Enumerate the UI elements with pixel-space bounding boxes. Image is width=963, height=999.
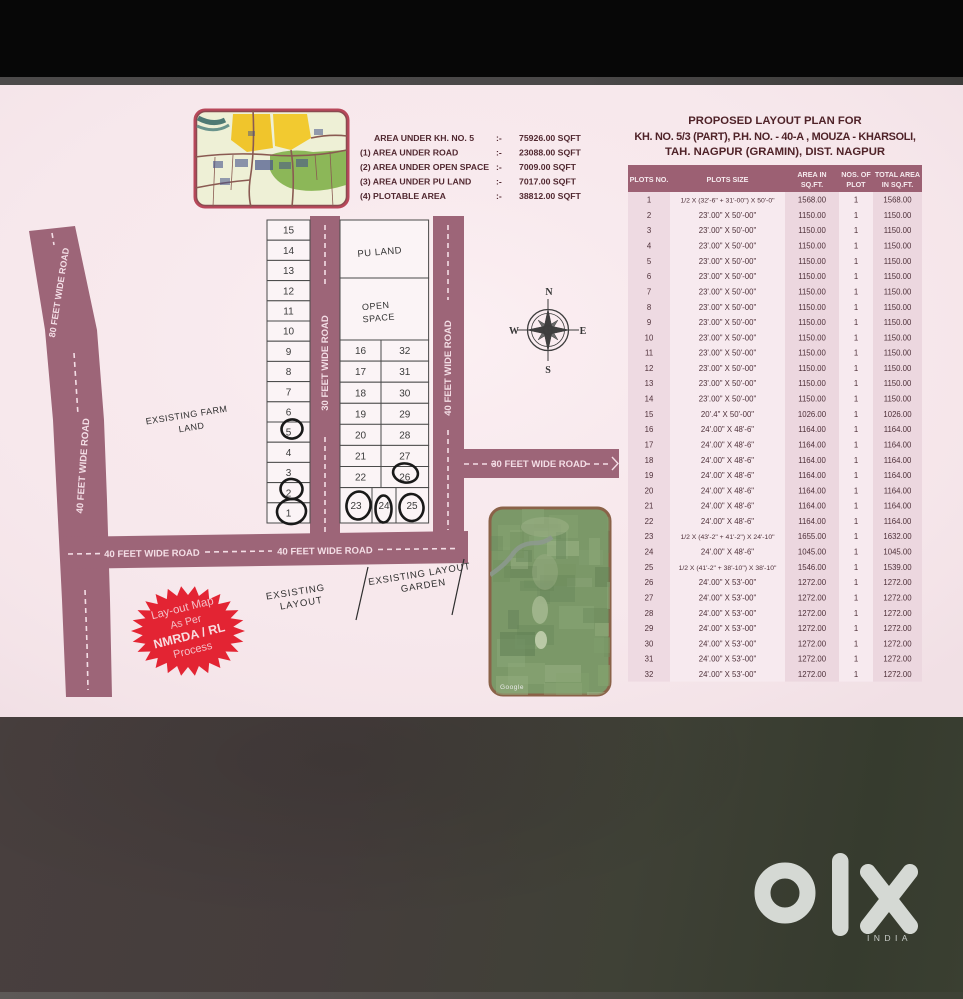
svg-text:1: 1 — [854, 257, 858, 266]
svg-text:29: 29 — [645, 624, 654, 633]
svg-text:PLOTS SIZE: PLOTS SIZE — [707, 175, 749, 184]
svg-text:1150.00: 1150.00 — [798, 242, 826, 251]
svg-text:15: 15 — [283, 226, 295, 237]
svg-text:24'.00" X 53'-00": 24'.00" X 53'-00" — [699, 594, 757, 603]
svg-text:W: W — [509, 326, 519, 337]
svg-text:1: 1 — [854, 333, 858, 342]
svg-text:1: 1 — [854, 548, 858, 557]
svg-text:1/2 X (41'-2" + 38'-10") X 38': 1/2 X (41'-2" + 38'-10") X 38'-10" — [679, 565, 777, 572]
svg-text:1150.00: 1150.00 — [798, 364, 826, 373]
svg-text:PLOT: PLOT — [846, 180, 866, 189]
svg-text:24'.00" X 48'-6": 24'.00" X 48'-6" — [701, 425, 754, 434]
svg-text:1539.00: 1539.00 — [883, 563, 912, 572]
svg-text:12: 12 — [645, 364, 654, 373]
svg-text:1150.00: 1150.00 — [798, 333, 826, 342]
svg-text:24'.00" X 48'-6": 24'.00" X 48'-6" — [701, 456, 754, 465]
svg-text:18: 18 — [645, 456, 654, 465]
svg-text:1: 1 — [854, 456, 858, 465]
svg-text:1: 1 — [854, 532, 858, 541]
svg-text:1272.00: 1272.00 — [798, 578, 827, 587]
svg-text:1: 1 — [854, 655, 858, 664]
svg-text:1164.00: 1164.00 — [884, 425, 912, 434]
svg-text:23'.00" X 50'-00": 23'.00" X 50'-00" — [699, 364, 757, 373]
svg-text:1164.00: 1164.00 — [884, 471, 912, 480]
svg-text:1272.00: 1272.00 — [798, 609, 827, 618]
svg-text:23'.00" X 50'-00": 23'.00" X 50'-00" — [699, 287, 757, 296]
svg-text:1150.00: 1150.00 — [884, 211, 912, 220]
svg-text:1150.00: 1150.00 — [798, 272, 826, 281]
svg-text:26: 26 — [645, 578, 654, 587]
svg-text:1: 1 — [854, 395, 858, 404]
svg-text:1272.00: 1272.00 — [883, 624, 912, 633]
svg-text:6: 6 — [647, 272, 651, 281]
svg-text:17: 17 — [355, 367, 367, 378]
svg-text:NOS. OF: NOS. OF — [841, 170, 871, 179]
svg-text:Google: Google — [500, 684, 524, 691]
svg-text:1150.00: 1150.00 — [884, 287, 912, 296]
svg-text:1272.00: 1272.00 — [798, 594, 827, 603]
svg-text:24'.00" X 48'-6": 24'.00" X 48'-6" — [701, 517, 754, 526]
svg-text:1: 1 — [854, 441, 858, 450]
svg-text:9: 9 — [647, 318, 651, 327]
svg-text:20: 20 — [645, 486, 654, 495]
svg-text:1164.00: 1164.00 — [798, 517, 826, 526]
svg-text:24'.00" X 48'-6": 24'.00" X 48'-6" — [701, 441, 754, 450]
svg-text:1150.00: 1150.00 — [884, 379, 912, 388]
svg-text:1164.00: 1164.00 — [884, 517, 912, 526]
svg-text::-: :- — [496, 133, 502, 143]
svg-text:20'.4" X 50'-00": 20'.4" X 50'-00" — [701, 410, 754, 419]
svg-text:1150.00: 1150.00 — [884, 272, 912, 281]
svg-text:23'.00" X 50'-00": 23'.00" X 50'-00" — [699, 242, 757, 251]
svg-text:1: 1 — [854, 211, 858, 220]
svg-text:20: 20 — [355, 431, 367, 442]
svg-text:1045.00: 1045.00 — [883, 548, 912, 557]
svg-text:1164.00: 1164.00 — [798, 425, 826, 434]
svg-text:1: 1 — [854, 594, 858, 603]
svg-text:11: 11 — [645, 349, 653, 358]
svg-text:31: 31 — [645, 655, 654, 664]
svg-text:23'.00" X 50'-00": 23'.00" X 50'-00" — [699, 303, 757, 312]
svg-text:1150.00: 1150.00 — [884, 242, 912, 251]
svg-text::-: :- — [496, 148, 502, 158]
svg-text:1: 1 — [854, 364, 858, 373]
svg-text:23'.00" X 50'-00": 23'.00" X 50'-00" — [699, 318, 757, 327]
svg-text:23'.00" X 50'-00": 23'.00" X 50'-00" — [699, 379, 757, 388]
svg-text:3: 3 — [647, 226, 651, 235]
svg-text:12: 12 — [283, 286, 295, 297]
svg-text:24: 24 — [645, 548, 654, 557]
svg-text:23: 23 — [350, 501, 362, 512]
svg-text:AREA IN: AREA IN — [797, 170, 826, 179]
svg-text:8: 8 — [286, 367, 292, 378]
svg-text:1150.00: 1150.00 — [884, 318, 912, 327]
svg-text:1150.00: 1150.00 — [884, 303, 912, 312]
svg-text::-: :- — [496, 177, 502, 187]
svg-text:TOTAL AREA: TOTAL AREA — [875, 170, 920, 179]
svg-text:24'.00" X 53'-00": 24'.00" X 53'-00" — [699, 639, 757, 648]
svg-text:25: 25 — [645, 563, 654, 572]
svg-text:19: 19 — [645, 471, 654, 480]
svg-text:1150.00: 1150.00 — [884, 257, 912, 266]
svg-text:23'.00" X 50'-00": 23'.00" X 50'-00" — [699, 349, 757, 358]
svg-text:30 FEET WIDE ROAD: 30 FEET WIDE ROAD — [491, 459, 587, 470]
svg-text:1: 1 — [647, 196, 651, 205]
svg-text:1150.00: 1150.00 — [798, 303, 826, 312]
svg-text:19: 19 — [355, 409, 367, 420]
svg-text:1164.00: 1164.00 — [884, 456, 912, 465]
svg-text:23'.00" X 50'-00": 23'.00" X 50'-00" — [699, 395, 757, 404]
svg-text:1632.00: 1632.00 — [883, 532, 912, 541]
svg-text:1150.00: 1150.00 — [884, 364, 912, 373]
svg-text:23'.00" X 50'-00": 23'.00" X 50'-00" — [699, 211, 757, 220]
svg-text:1164.00: 1164.00 — [798, 502, 826, 511]
svg-text:(2) AREA UNDER OPEN SPACE: (2) AREA UNDER OPEN SPACE — [360, 162, 489, 172]
svg-text:14: 14 — [283, 246, 295, 257]
svg-text:1026.00: 1026.00 — [798, 410, 827, 419]
svg-text:23'.00" X 50'-00": 23'.00" X 50'-00" — [699, 333, 757, 342]
svg-text:1: 1 — [854, 624, 858, 633]
svg-text:E: E — [580, 326, 587, 337]
svg-text:28: 28 — [645, 609, 654, 618]
svg-text:1164.00: 1164.00 — [798, 441, 826, 450]
svg-text:S: S — [545, 365, 551, 376]
svg-text:21: 21 — [355, 452, 367, 463]
svg-text:1272.00: 1272.00 — [798, 624, 827, 633]
svg-text:1: 1 — [854, 287, 858, 296]
svg-text:1: 1 — [854, 502, 858, 511]
svg-text:1568.00: 1568.00 — [883, 196, 912, 205]
svg-text:18: 18 — [355, 388, 367, 399]
svg-text:16: 16 — [645, 425, 654, 434]
svg-text:9: 9 — [286, 347, 292, 358]
svg-text:3: 3 — [286, 468, 292, 479]
svg-text:24'.00" X 53'-00": 24'.00" X 53'-00" — [699, 578, 757, 587]
svg-text:24'.00" X 53'-00": 24'.00" X 53'-00" — [699, 670, 757, 679]
svg-text:1: 1 — [854, 639, 858, 648]
svg-text:24'.00" X 48'-6": 24'.00" X 48'-6" — [701, 486, 754, 495]
svg-text:1568.00: 1568.00 — [798, 196, 827, 205]
svg-text:1150.00: 1150.00 — [884, 226, 912, 235]
svg-text:1: 1 — [854, 242, 858, 251]
svg-text:1655.00: 1655.00 — [798, 532, 827, 541]
svg-text:16: 16 — [355, 346, 367, 357]
svg-text:40 FEET WIDE ROAD: 40 FEET WIDE ROAD — [104, 548, 200, 560]
svg-text:15: 15 — [645, 410, 654, 419]
svg-text:6: 6 — [286, 408, 292, 419]
svg-text:10: 10 — [283, 327, 295, 338]
svg-text:1164.00: 1164.00 — [798, 456, 826, 465]
svg-text:1045.00: 1045.00 — [798, 548, 827, 557]
svg-text:29: 29 — [399, 409, 411, 420]
svg-text:N: N — [545, 287, 553, 298]
svg-text:40 FEET WIDE ROAD: 40 FEET WIDE ROAD — [277, 545, 373, 557]
svg-text::-: :- — [496, 191, 502, 201]
svg-text:1150.00: 1150.00 — [798, 211, 826, 220]
svg-text:1: 1 — [854, 425, 858, 434]
svg-text:30: 30 — [399, 388, 411, 399]
svg-text:AREA UNDER KH. NO. 5: AREA UNDER KH. NO. 5 — [374, 133, 474, 143]
svg-text:(1) AREA UNDER ROAD: (1) AREA UNDER ROAD — [360, 148, 458, 158]
svg-text:1: 1 — [854, 578, 858, 587]
svg-text:1272.00: 1272.00 — [883, 609, 912, 618]
svg-text:1/2 X (43'-2" + 41'-2") X 24'-: 1/2 X (43'-2" + 41'-2") X 24'-10" — [680, 534, 775, 541]
svg-text:PROPOSED LAYOUT PLAN FOR: PROPOSED LAYOUT PLAN FOR — [688, 115, 861, 127]
svg-text:1: 1 — [286, 509, 292, 520]
svg-text:23'.00" X 50'-00": 23'.00" X 50'-00" — [699, 257, 757, 266]
svg-text:1: 1 — [854, 471, 858, 480]
svg-text:(3) AREA UNDER PU LAND: (3) AREA UNDER PU LAND — [360, 177, 471, 187]
svg-text:1026.00: 1026.00 — [883, 410, 912, 419]
svg-text:7009.00 SQFT: 7009.00 SQFT — [519, 162, 577, 172]
svg-text:23088.00 SQFT: 23088.00 SQFT — [519, 148, 582, 158]
svg-text:1: 1 — [854, 379, 858, 388]
svg-text:27: 27 — [645, 594, 654, 603]
svg-text:38812.00 SQFT: 38812.00 SQFT — [519, 191, 582, 201]
svg-text:28: 28 — [399, 431, 411, 442]
svg-text:1272.00: 1272.00 — [883, 655, 912, 664]
svg-text:1150.00: 1150.00 — [798, 379, 826, 388]
svg-text:75926.00 SQFT: 75926.00 SQFT — [519, 133, 582, 143]
svg-text:1150.00: 1150.00 — [798, 257, 826, 266]
svg-text:32: 32 — [399, 346, 411, 357]
svg-text:22: 22 — [645, 517, 654, 526]
svg-text:KH. NO. 5/3 (PART), P.H. NO. -: KH. NO. 5/3 (PART), P.H. NO. - 40-A , MO… — [634, 131, 915, 143]
svg-text:1: 1 — [854, 670, 858, 679]
svg-text:23: 23 — [645, 532, 654, 541]
svg-text:40 FEET WIDE ROAD: 40 FEET WIDE ROAD — [443, 320, 454, 416]
svg-text:24'.00" X 53'-00": 24'.00" X 53'-00" — [699, 609, 757, 618]
svg-text:7: 7 — [286, 387, 292, 398]
svg-text:1164.00: 1164.00 — [798, 486, 826, 495]
svg-text:1: 1 — [854, 410, 858, 419]
svg-text:23'.00" X 50'-00": 23'.00" X 50'-00" — [699, 226, 757, 235]
svg-text:1: 1 — [854, 318, 858, 327]
svg-text::-: :- — [496, 162, 502, 172]
svg-text:1272.00: 1272.00 — [798, 655, 827, 664]
svg-text:30 FEET WIDE ROAD: 30 FEET WIDE ROAD — [320, 315, 331, 411]
svg-text:(4) PLOTABLE AREA: (4) PLOTABLE AREA — [360, 191, 447, 201]
svg-text:14: 14 — [645, 395, 654, 404]
svg-text:23'.00" X 50'-00": 23'.00" X 50'-00" — [699, 272, 757, 281]
svg-text:1164.00: 1164.00 — [798, 471, 826, 480]
svg-text:24'.00" X 53'-00": 24'.00" X 53'-00" — [699, 624, 757, 633]
svg-text:1150.00: 1150.00 — [798, 226, 826, 235]
svg-text:1272.00: 1272.00 — [798, 639, 827, 648]
svg-text:22: 22 — [355, 473, 367, 484]
svg-text:13: 13 — [645, 379, 654, 388]
svg-text:4: 4 — [647, 242, 652, 251]
svg-text:10: 10 — [645, 333, 654, 342]
svg-text:1150.00: 1150.00 — [884, 349, 912, 358]
svg-text:24'.00" X 48'-6": 24'.00" X 48'-6" — [701, 502, 754, 511]
svg-text:SQ.FT.: SQ.FT. — [801, 180, 823, 189]
svg-text:1150.00: 1150.00 — [884, 333, 912, 342]
svg-text:1272.00: 1272.00 — [798, 670, 827, 679]
svg-text:1272.00: 1272.00 — [883, 670, 912, 679]
svg-text:2: 2 — [647, 211, 651, 220]
svg-text:PLOTS NO.: PLOTS NO. — [630, 175, 669, 184]
svg-text:24'.00" X 48'-6": 24'.00" X 48'-6" — [701, 548, 754, 557]
svg-text:IN SQ.FT.: IN SQ.FT. — [882, 180, 914, 189]
svg-text:1150.00: 1150.00 — [798, 318, 826, 327]
svg-text:7017.00 SQFT: 7017.00 SQFT — [519, 177, 577, 187]
svg-text:1164.00: 1164.00 — [884, 486, 912, 495]
svg-text:7: 7 — [647, 287, 651, 296]
svg-text:1150.00: 1150.00 — [798, 349, 826, 358]
svg-text:1546.00: 1546.00 — [798, 563, 827, 572]
svg-text:4: 4 — [286, 448, 292, 459]
svg-text:30: 30 — [645, 639, 654, 648]
svg-text:TAH. NAGPUR (GRAMIN), DIST. NA: TAH. NAGPUR (GRAMIN), DIST. NAGPUR — [665, 146, 885, 158]
svg-text:24'.00" X 48'-6": 24'.00" X 48'-6" — [701, 471, 754, 480]
svg-text:1: 1 — [854, 563, 858, 572]
svg-text:1164.00: 1164.00 — [884, 502, 912, 511]
svg-text:24: 24 — [378, 501, 390, 512]
svg-text:1150.00: 1150.00 — [884, 395, 912, 404]
svg-text:1: 1 — [854, 349, 858, 358]
svg-text:1: 1 — [854, 303, 858, 312]
svg-text:8: 8 — [647, 303, 651, 312]
svg-text:5: 5 — [647, 257, 652, 266]
svg-text:27: 27 — [399, 452, 411, 463]
svg-text:24'.00" X 53'-00": 24'.00" X 53'-00" — [699, 655, 757, 664]
svg-text:1: 1 — [854, 609, 858, 618]
svg-text:25: 25 — [406, 501, 418, 512]
svg-text:INDIA: INDIA — [867, 933, 912, 943]
svg-text:32: 32 — [645, 670, 654, 679]
svg-text:1: 1 — [854, 196, 858, 205]
svg-text:1272.00: 1272.00 — [883, 639, 912, 648]
svg-text:31: 31 — [399, 367, 411, 378]
svg-text:1150.00: 1150.00 — [798, 395, 826, 404]
svg-text:1: 1 — [854, 517, 858, 526]
svg-text:1: 1 — [854, 272, 858, 281]
svg-text:1164.00: 1164.00 — [884, 441, 912, 450]
svg-text:13: 13 — [283, 266, 295, 277]
svg-text:1272.00: 1272.00 — [883, 594, 912, 603]
svg-text:1272.00: 1272.00 — [883, 578, 912, 587]
svg-text:21: 21 — [645, 502, 654, 511]
svg-text:1: 1 — [854, 486, 858, 495]
svg-text:1150.00: 1150.00 — [798, 287, 826, 296]
svg-text:1: 1 — [854, 226, 858, 235]
svg-text:11: 11 — [283, 307, 294, 318]
svg-text:1/2 X (32'-6" + 31'-00") X 50': 1/2 X (32'-6" + 31'-00") X 50'-0" — [680, 198, 775, 205]
svg-text:17: 17 — [645, 441, 654, 450]
